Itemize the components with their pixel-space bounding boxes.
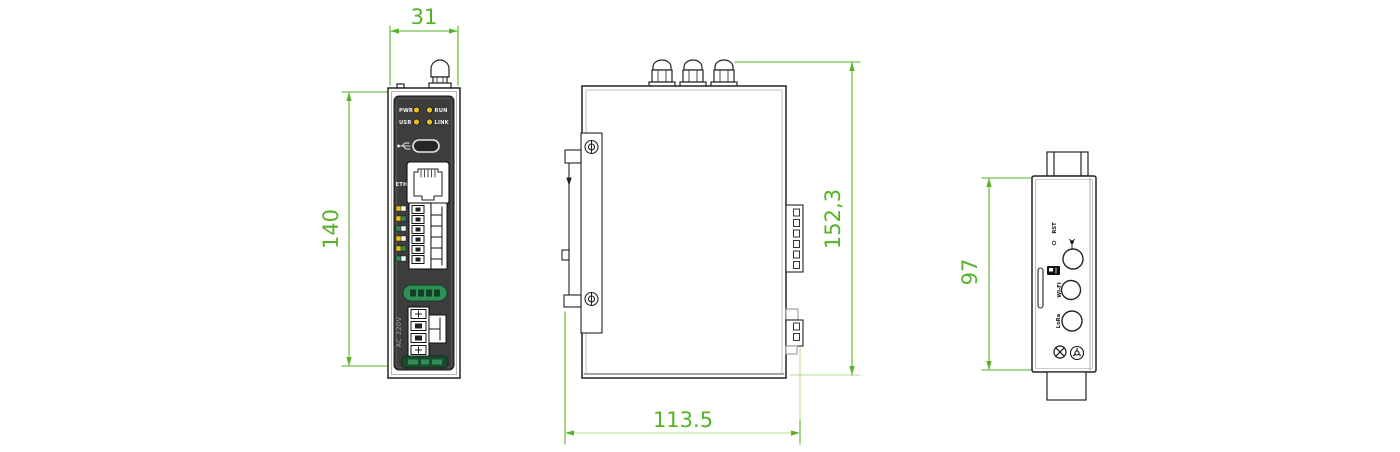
usr-led-icon <box>414 119 420 125</box>
front-view: 31 140 PWR <box>319 5 460 378</box>
screw-icon <box>585 293 598 306</box>
rj45-port <box>407 162 449 204</box>
side-view: 152,3 113.5 <box>562 60 860 444</box>
led-usr-label: USR <box>399 120 412 126</box>
run-led-icon <box>427 107 433 113</box>
dim-arrow-icon <box>791 430 800 435</box>
antenna-connector-icon <box>649 60 675 88</box>
led-link-label: LINK <box>435 120 450 126</box>
led-pwr-label: PWR <box>399 108 413 114</box>
power-label: AC 220V <box>395 317 403 348</box>
lora-label: LoRa <box>1056 313 1062 328</box>
dim-arrow-icon <box>565 430 574 435</box>
din-rail-bracket <box>562 133 602 333</box>
micro-usb-connector <box>413 140 439 152</box>
side-height-value: 152,3 <box>821 189 845 249</box>
screw-icon <box>585 141 598 154</box>
antenna-connector-icon <box>397 60 451 88</box>
link-led-icon <box>427 119 433 125</box>
bottom-connector-block <box>1047 372 1086 400</box>
top-connector-block <box>1047 152 1088 176</box>
antenna-connector-icon <box>680 60 706 88</box>
top-height-dimension: 97 <box>958 178 1032 370</box>
antenna-connector-icon <box>711 60 737 88</box>
power-plug-comb <box>429 315 446 343</box>
dim-arrow-icon <box>346 357 351 366</box>
product-label <box>403 285 447 301</box>
front-width-value: 31 <box>411 5 438 29</box>
dim-arrow-icon <box>849 366 854 375</box>
brand-bar <box>402 356 448 368</box>
dim-arrow-icon <box>849 62 854 71</box>
front-height-dimension: 140 <box>319 92 387 366</box>
top-height-value: 97 <box>958 259 982 286</box>
drawing-svg: 31 140 PWR <box>0 0 1400 452</box>
wifi-antenna-jack <box>1062 281 1081 300</box>
sim-icon <box>1047 266 1060 275</box>
sim-card-slot <box>1038 268 1043 308</box>
side-enclosure <box>582 86 786 378</box>
dim-arrow-icon <box>346 92 351 101</box>
top-view: 97 RST <box>958 152 1096 400</box>
din-clip-outline <box>562 150 581 307</box>
cellular-antenna-jack <box>1063 249 1083 269</box>
dim-arrow-icon <box>449 28 458 33</box>
side-terminal-blocks <box>786 205 803 354</box>
terminal-plug-comb <box>431 203 447 269</box>
wifi-label: WI-FI <box>1057 282 1063 297</box>
led-run-label: RUN <box>435 108 448 114</box>
dimensional-drawing: 31 140 PWR <box>0 0 1400 452</box>
dim-arrow-icon <box>986 178 991 187</box>
reset-label: RST <box>1052 222 1058 234</box>
dim-arrow-icon <box>390 28 399 33</box>
eth-label: ETH <box>396 182 408 188</box>
side-width-value: 113.5 <box>653 408 713 432</box>
dim-arrow-icon <box>986 361 991 370</box>
pwr-led-icon <box>414 107 420 113</box>
front-height-value: 140 <box>319 209 343 249</box>
antenna-connectors <box>649 60 737 88</box>
lora-antenna-jack <box>1062 311 1082 331</box>
